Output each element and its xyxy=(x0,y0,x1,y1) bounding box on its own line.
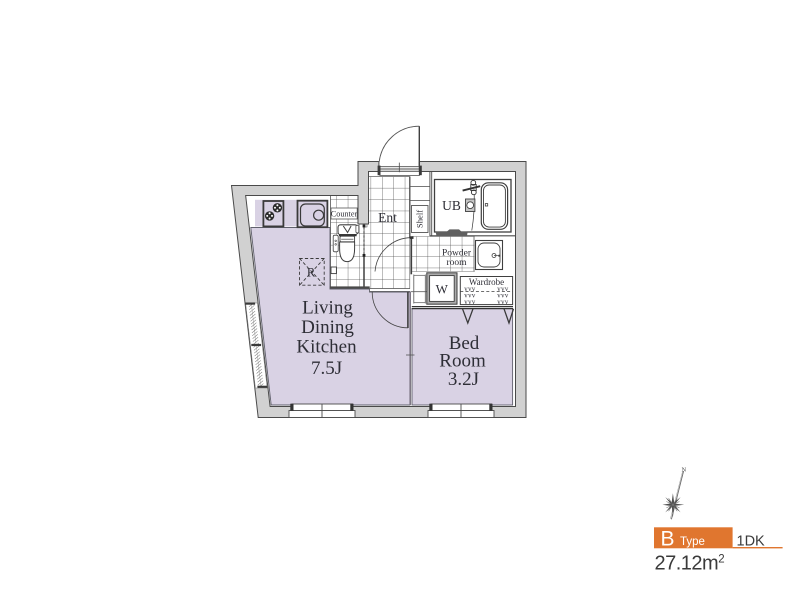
svg-text:B: B xyxy=(661,527,675,550)
svg-text:room: room xyxy=(446,258,467,268)
svg-text:vvv: vvv xyxy=(497,299,509,306)
svg-text:Counter: Counter xyxy=(331,209,358,218)
svg-text:Powder: Powder xyxy=(442,249,472,259)
svg-text:Kitchen: Kitchen xyxy=(296,337,357,358)
svg-text:vvv: vvv xyxy=(464,299,476,306)
svg-text:UB: UB xyxy=(442,198,461,213)
svg-text:7.5J: 7.5J xyxy=(311,358,342,379)
svg-text:Shelf: Shelf xyxy=(415,210,425,228)
svg-text:Dining: Dining xyxy=(301,317,354,338)
svg-text:N: N xyxy=(681,466,686,473)
svg-text:Type: Type xyxy=(680,536,705,548)
svg-text:27.12m2: 27.12m2 xyxy=(655,553,725,575)
svg-text:R: R xyxy=(307,266,316,280)
svg-text:W: W xyxy=(436,281,449,296)
svg-text:Ent: Ent xyxy=(378,210,397,225)
svg-text:3.2J: 3.2J xyxy=(448,369,479,390)
svg-text:Living: Living xyxy=(302,298,353,319)
